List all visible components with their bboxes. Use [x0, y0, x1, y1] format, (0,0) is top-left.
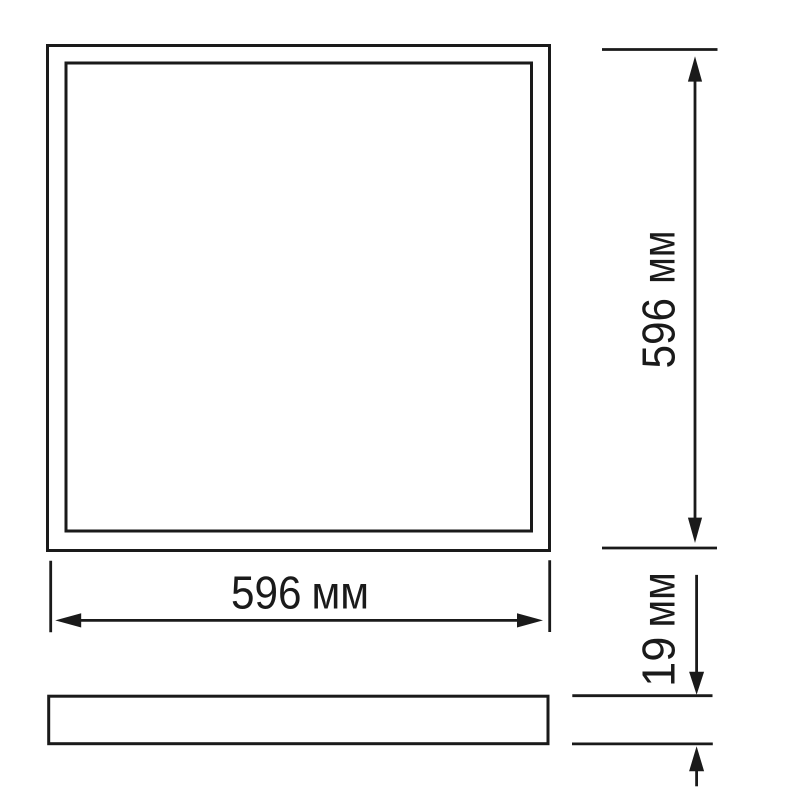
- svg-text:мм: мм: [312, 567, 370, 619]
- svg-text:мм: мм: [633, 572, 685, 627]
- svg-text:596: 596: [231, 567, 302, 619]
- svg-text:19: 19: [633, 637, 685, 687]
- svg-text:596: 596: [633, 298, 685, 369]
- svg-text:мм: мм: [633, 231, 685, 284]
